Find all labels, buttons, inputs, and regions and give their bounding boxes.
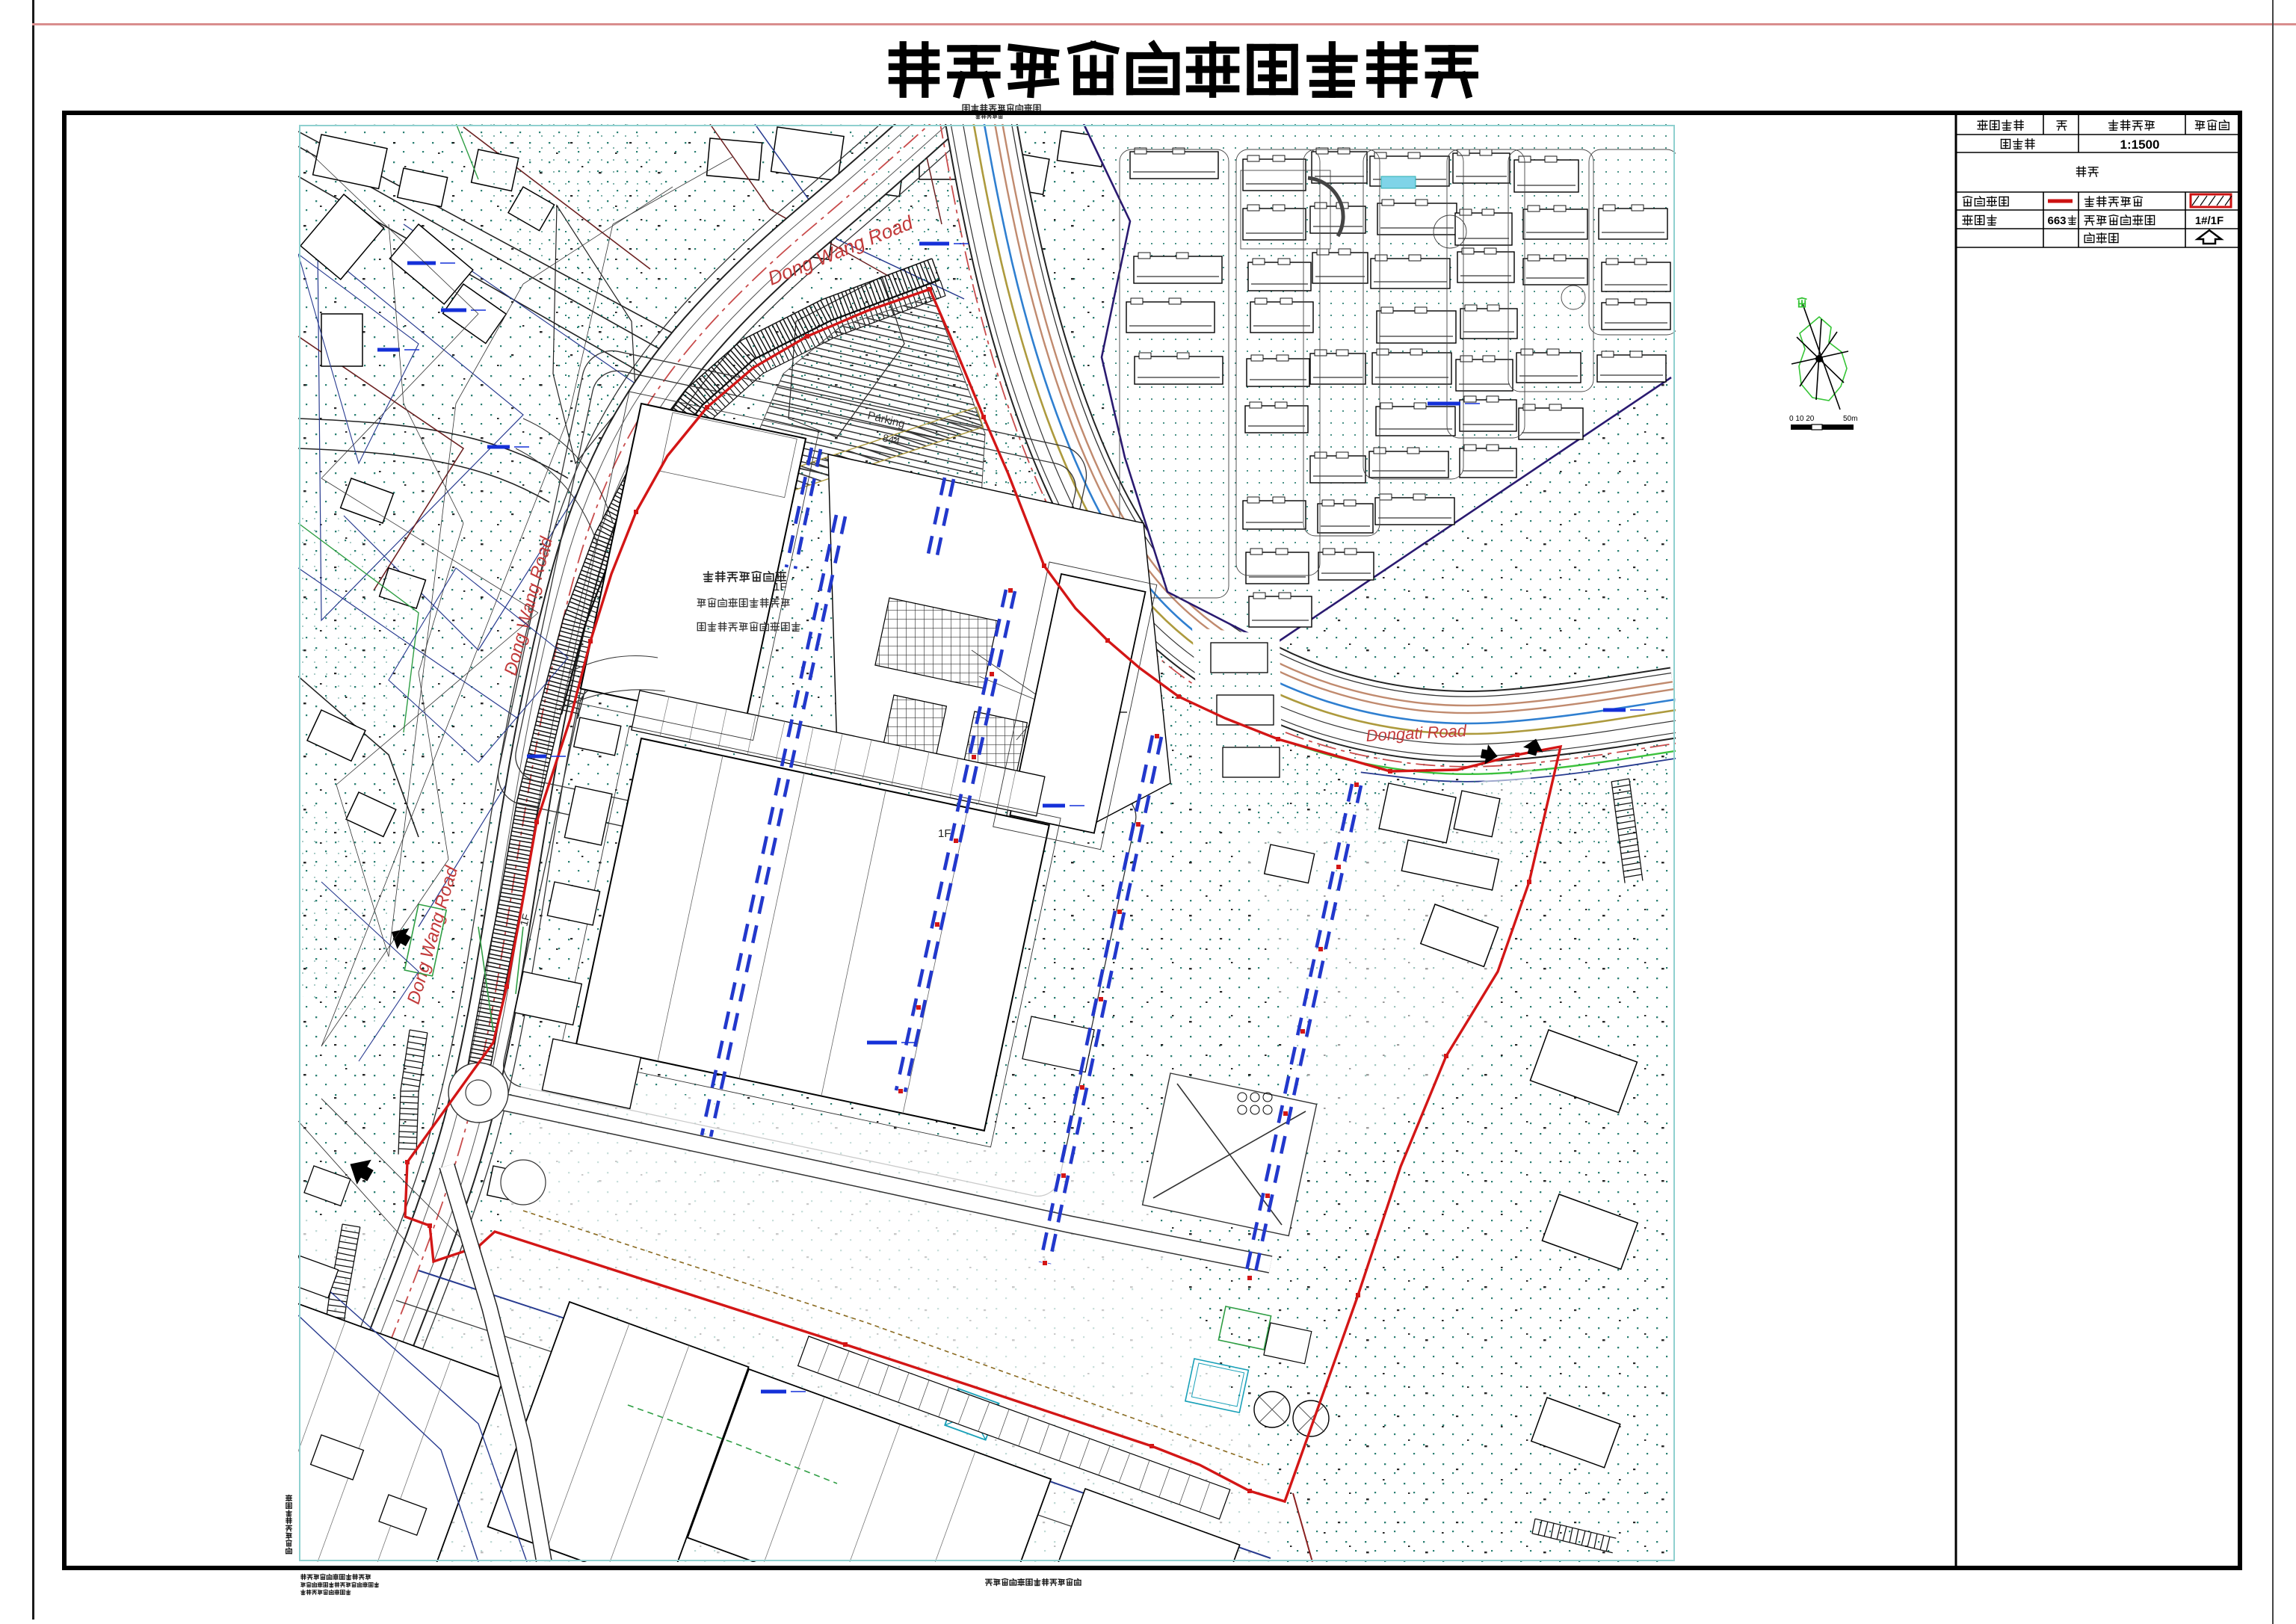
svg-text:1#/1F: 1#/1F [2195, 214, 2224, 227]
svg-text:1F: 1F [774, 581, 787, 593]
svg-text:0 10 20: 0 10 20 [1789, 415, 1815, 423]
svg-text:1F: 1F [938, 827, 951, 840]
svg-text:50m: 50m [1843, 415, 1857, 423]
svg-text:663: 663 [2047, 214, 2066, 227]
svg-text:1:1500: 1:1500 [2120, 138, 2160, 152]
